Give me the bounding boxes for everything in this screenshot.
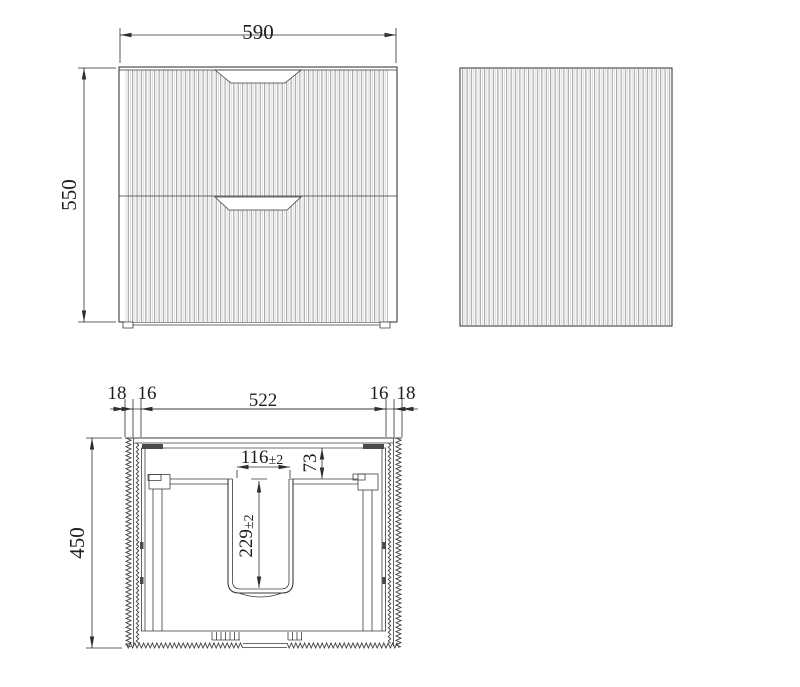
interior-side-walls <box>142 448 386 631</box>
front-rail-lines <box>170 479 358 484</box>
chain-label-18-right: 18 <box>397 383 416 404</box>
technical-drawing: 590 550 <box>0 0 800 687</box>
side-panel-face-lines <box>134 438 394 646</box>
back-offset-value: 73 <box>300 454 321 473</box>
plan-view: 450 18 16 522 16 18 116±2 73 <box>65 383 418 648</box>
back-corner-bracket-right <box>363 444 384 449</box>
front-width-value: 590 <box>242 20 274 44</box>
dim-chain-top: 18 16 522 16 18 <box>108 383 419 437</box>
plan-depth-value: 450 <box>65 527 89 559</box>
right-inner-flute-line <box>388 443 390 643</box>
side-view <box>460 68 672 326</box>
basin-cutout-arc <box>239 593 282 597</box>
dim-cutout-width-116: 116±2 <box>237 447 290 478</box>
right-wall-fitting-lower <box>383 577 387 584</box>
bottom-drawer-handle-recess <box>215 197 301 210</box>
front-height-value: 550 <box>57 179 81 211</box>
dim-cutout-depth-229: 229±2 <box>236 481 259 588</box>
dim-height-550: 550 <box>57 68 116 322</box>
left-wall-fitting-lower <box>140 577 144 584</box>
left-fluted-edge <box>126 438 131 647</box>
chain-label-522: 522 <box>249 390 278 411</box>
right-fluted-edge <box>396 438 401 647</box>
dim-width-590: 590 <box>120 20 396 63</box>
chain-label-18-left: 18 <box>108 383 127 404</box>
drawing-canvas: 590 550 <box>0 0 800 687</box>
front-fluted-edge-left <box>126 643 243 648</box>
drawer-slide-left <box>148 475 170 632</box>
side-fluted-panel <box>461 69 671 325</box>
drawer-slide-right <box>353 474 378 631</box>
chain-label-16-right: 16 <box>370 383 389 404</box>
dim-back-offset-73: 73 <box>300 448 322 479</box>
left-inner-flute-line <box>136 443 138 643</box>
front-fluted-edge-right <box>287 643 399 648</box>
front-view: 590 550 <box>57 20 397 328</box>
cutout-width-value: 116±2 <box>241 447 283 468</box>
front-edge-center-flat <box>243 644 287 648</box>
dim-extension-lines <box>86 438 122 648</box>
dim-extension-lines <box>237 470 290 478</box>
chain-label-16-left: 16 <box>138 383 157 404</box>
cutout-depth-value: 229±2 <box>236 514 257 557</box>
right-wall-fitting-upper <box>383 542 387 549</box>
dim-depth-450: 450 <box>65 438 122 648</box>
front-panel-combs <box>212 632 302 640</box>
left-wall-fitting-upper <box>140 542 144 549</box>
